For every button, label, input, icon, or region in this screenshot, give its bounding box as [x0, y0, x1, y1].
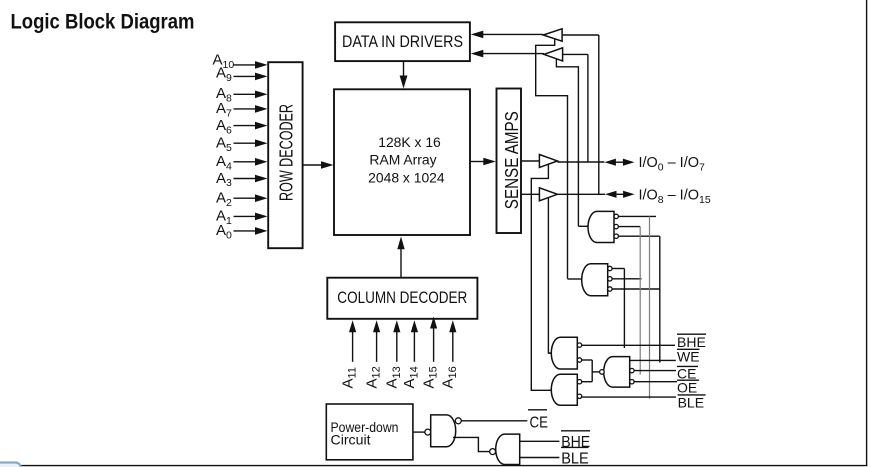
svg-text:Circuit: Circuit — [331, 432, 371, 448]
svg-text:BLE: BLE — [561, 450, 589, 467]
svg-text:A15: A15 — [420, 366, 439, 388]
svg-text:A6: A6 — [216, 117, 232, 136]
svg-text:BLE: BLE — [678, 394, 704, 410]
svg-text:A2: A2 — [216, 190, 232, 209]
svg-text:OE: OE — [677, 379, 697, 395]
svg-text:DATA IN DRIVERS: DATA IN DRIVERS — [342, 33, 463, 51]
svg-text:BHE: BHE — [561, 434, 590, 451]
svg-text:A3: A3 — [216, 170, 232, 189]
svg-text:RAM Array: RAM Array — [369, 151, 436, 167]
svg-text:COLUMN DECODER: COLUMN DECODER — [337, 289, 467, 307]
svg-text:ROW DECODER: ROW DECODER — [277, 104, 297, 201]
svg-text:WE: WE — [677, 349, 700, 365]
svg-text:A12: A12 — [363, 366, 382, 388]
svg-text:A16: A16 — [440, 366, 459, 388]
svg-text:I/O8 – I/O15: I/O8 – I/O15 — [639, 187, 711, 206]
svg-text:Logic Block Diagram: Logic Block Diagram — [11, 11, 195, 34]
svg-text:I/O0 – I/O7: I/O0 – I/O7 — [639, 155, 706, 174]
svg-text:128K x 16: 128K x 16 — [378, 134, 441, 150]
svg-text:A11: A11 — [339, 367, 358, 388]
svg-text:2048 x 1024: 2048 x 1024 — [368, 169, 445, 185]
svg-text:A14: A14 — [401, 366, 420, 388]
svg-text:CE: CE — [530, 414, 549, 431]
svg-text:SENSE AMPS: SENSE AMPS — [502, 111, 522, 209]
svg-text:A13: A13 — [384, 366, 403, 388]
svg-text:A5: A5 — [216, 135, 232, 154]
svg-text:BHE: BHE — [677, 334, 706, 350]
